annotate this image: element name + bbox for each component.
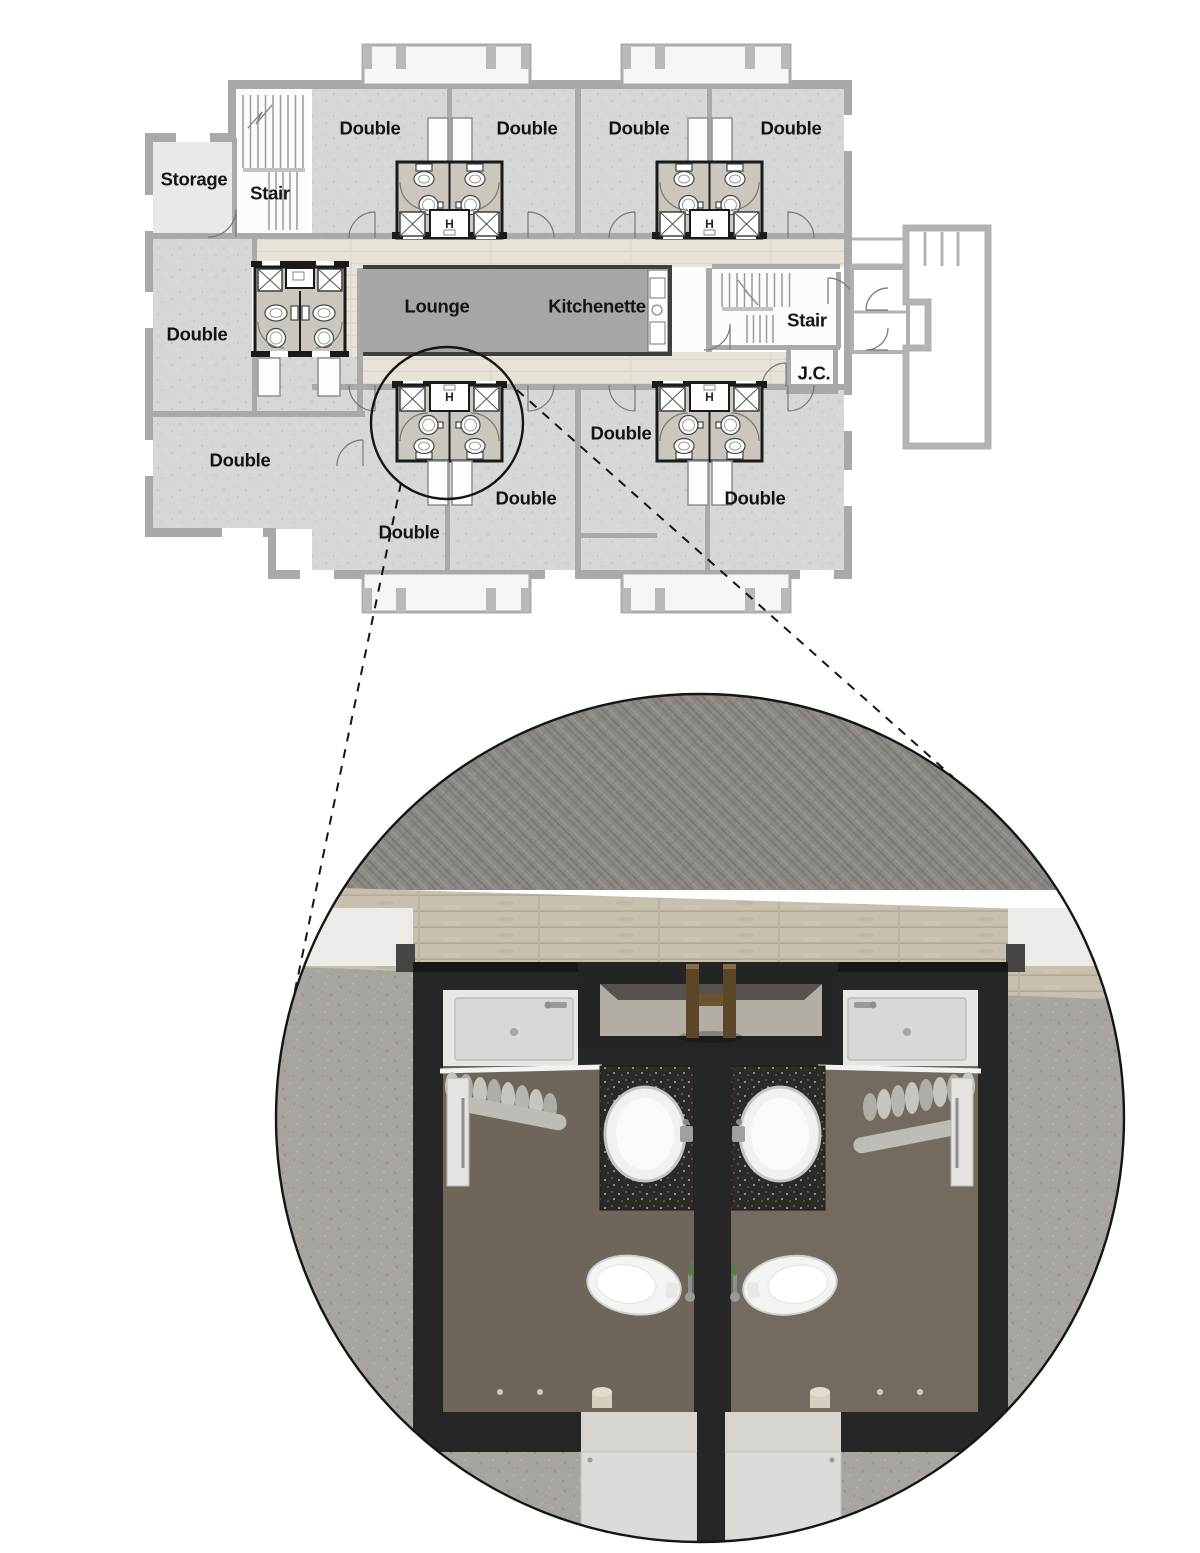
closet-symbol: H xyxy=(705,390,714,404)
bedroom-wall-right xyxy=(1008,908,1124,966)
luggage-rack-closet xyxy=(578,962,838,1048)
room-label-kitchenette: Kitchenette xyxy=(548,296,645,317)
room-label-double-left: Double xyxy=(167,324,228,345)
window-bay xyxy=(622,573,790,612)
screenshot-root: H H xyxy=(0,0,1200,1553)
vanity-sink-left xyxy=(600,1066,694,1210)
room-label-stair-right: Stair xyxy=(787,310,827,331)
shower-left xyxy=(443,990,578,1066)
window-bay xyxy=(363,573,530,612)
room-label-double-bottom-4: Double xyxy=(591,423,652,444)
right-annex xyxy=(852,228,988,446)
room-label-storage: Storage xyxy=(161,169,228,190)
open-door-left xyxy=(447,1078,469,1186)
room-label-double-top-4: Double xyxy=(761,118,822,139)
room-label-double-top-1: Double xyxy=(340,118,401,139)
room-label-double-bottom-3: Double xyxy=(496,488,557,509)
closet-symbol: H xyxy=(705,217,714,231)
shower-right xyxy=(843,990,978,1066)
room-label-double-bottom-2: Double xyxy=(379,522,440,543)
corridor xyxy=(312,239,846,267)
floor-plan-figure: H H xyxy=(0,0,1200,1553)
floor-plan: H H xyxy=(145,45,988,612)
room-label-double-bottom-1: Double xyxy=(210,450,271,471)
closet-symbol: H xyxy=(445,390,454,404)
bedroom-wall-left xyxy=(276,908,413,966)
room-label-double-top-2: Double xyxy=(497,118,558,139)
window-bay xyxy=(622,45,790,85)
room-label-stair-left: Stair xyxy=(250,183,290,204)
detail-callout xyxy=(276,694,1124,1544)
kitchenette-counter xyxy=(648,270,668,352)
closet-symbol: H xyxy=(445,217,454,231)
room-label-jc: J.C. xyxy=(798,363,831,384)
window-bay xyxy=(363,45,530,85)
detail-scene xyxy=(276,694,1124,1544)
room-label-double-top-3: Double xyxy=(609,118,670,139)
room-label-lounge: Lounge xyxy=(405,296,470,317)
room-label-double-bottom-5: Double xyxy=(725,488,786,509)
open-door-right xyxy=(951,1078,973,1186)
vanity-sink-right xyxy=(731,1066,825,1210)
